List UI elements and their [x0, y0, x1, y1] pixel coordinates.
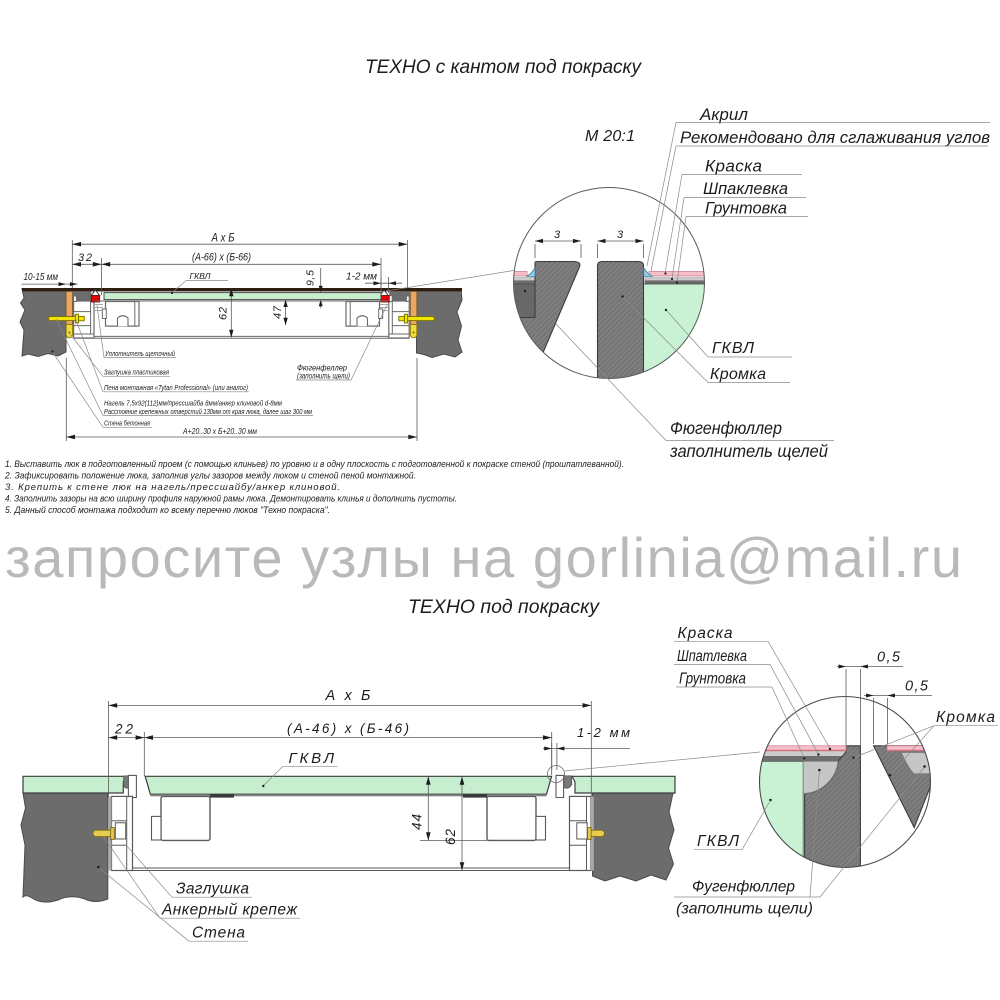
- svg-text:62: 62: [218, 307, 230, 320]
- svg-text:Анкерный крепеж: Анкерный крепеж: [161, 902, 298, 919]
- svg-text:Грунтовка: Грунтовка: [705, 199, 787, 218]
- svg-text:Краска: Краска: [705, 157, 762, 176]
- svg-text:32: 32: [78, 252, 92, 264]
- svg-text:А х Б: А х Б: [325, 688, 371, 704]
- svg-text:(заполнить щели): (заполнить щели): [297, 370, 350, 380]
- svg-text:Грунтовка: Грунтовка: [679, 671, 746, 688]
- svg-text:Стена: Стена: [192, 925, 245, 942]
- svg-text:47: 47: [272, 305, 284, 319]
- svg-text:10-15 мм: 10-15 мм: [24, 271, 59, 283]
- svg-text:4. Заполнить зазоры на всю шир: 4. Заполнить зазоры на всю ширину профил…: [5, 494, 457, 505]
- svg-text:Фугенфюллер: Фугенфюллер: [692, 879, 795, 896]
- svg-text:Стена бетонная: Стена бетонная: [104, 419, 150, 428]
- svg-text:Кромка: Кромка: [710, 366, 766, 383]
- svg-text:3. Крепить к стене люк на наге: 3. Крепить к стене люк на нагель/прессша…: [5, 482, 340, 493]
- svg-text:ГКВЛ: ГКВЛ: [289, 750, 335, 767]
- svg-text:Краска: Краска: [678, 625, 733, 642]
- svg-text:ТЕХНО под покраску: ТЕХНО под покраску: [408, 596, 600, 618]
- svg-text:(А-46) х (Б-46): (А-46) х (Б-46): [287, 721, 409, 736]
- svg-text:Фюгенфюллер: Фюгенфюллер: [670, 418, 782, 438]
- svg-text:3: 3: [554, 229, 561, 241]
- svg-text:заполнитель щелей: заполнитель щелей: [669, 441, 828, 461]
- svg-text:Заглушка пластиковая: Заглушка пластиковая: [104, 368, 169, 377]
- svg-text:ГКВЛ: ГКВЛ: [697, 833, 739, 850]
- svg-text:(А-66) х (Б-66): (А-66) х (Б-66): [192, 252, 251, 264]
- svg-text:Расстояние крепежных отверстий: Расстояние крепежных отверстий 130мм от …: [104, 407, 312, 416]
- svg-text:Уплотнитель щеточный: Уплотнитель щеточный: [104, 349, 175, 358]
- svg-text:Заглушка: Заглушка: [176, 881, 249, 898]
- svg-text:62: 62: [443, 829, 458, 845]
- svg-text:ГКВЛ: ГКВЛ: [712, 340, 754, 357]
- svg-text:М 20:1: М 20:1: [585, 128, 635, 145]
- svg-text:44: 44: [410, 814, 425, 830]
- svg-text:5. Данный способ монтажа подхо: 5. Данный способ монтажа подходит ко все…: [5, 505, 330, 516]
- svg-text:А х Б: А х Б: [211, 233, 235, 245]
- svg-text:Акрил: Акрил: [699, 105, 748, 124]
- svg-text:Пена монтажная «Tytan Professi: Пена монтажная «Tytan Professional» (или…: [104, 383, 248, 392]
- svg-text:ТЕХНО с кантом под покраску: ТЕХНО с кантом под покраску: [365, 56, 642, 78]
- svg-text:(заполнить щели): (заполнить щели): [676, 901, 813, 918]
- svg-text:1-2 мм: 1-2 мм: [346, 271, 377, 283]
- svg-text:Рекомендовано для сглаживания: Рекомендовано для сглаживания углов: [680, 128, 990, 147]
- svg-text:запросите узлы на gorlinia@mai: запросите узлы на gorlinia@mail.ru: [5, 526, 962, 589]
- svg-text:0,5: 0,5: [905, 679, 929, 695]
- svg-text:9,5: 9,5: [305, 270, 317, 286]
- svg-text:А+20..30 х Б+20..30 мм: А+20..30 х Б+20..30 мм: [182, 426, 257, 436]
- svg-text:1. Выставить люк в подготовлен: 1. Выставить люк в подготовленный проем …: [5, 459, 624, 470]
- svg-text:0,5: 0,5: [877, 650, 901, 666]
- svg-text:3: 3: [617, 229, 624, 241]
- svg-text:2. Зафиксировать положение люк: 2. Зафиксировать положение люка, заполни…: [4, 471, 416, 482]
- svg-text:Шпаклевка: Шпаклевка: [703, 179, 788, 198]
- svg-text:Кромка: Кромка: [936, 709, 995, 726]
- svg-text:ГКВЛ: ГКВЛ: [190, 271, 211, 281]
- svg-text:Шпатлевка: Шпатлевка: [677, 648, 747, 665]
